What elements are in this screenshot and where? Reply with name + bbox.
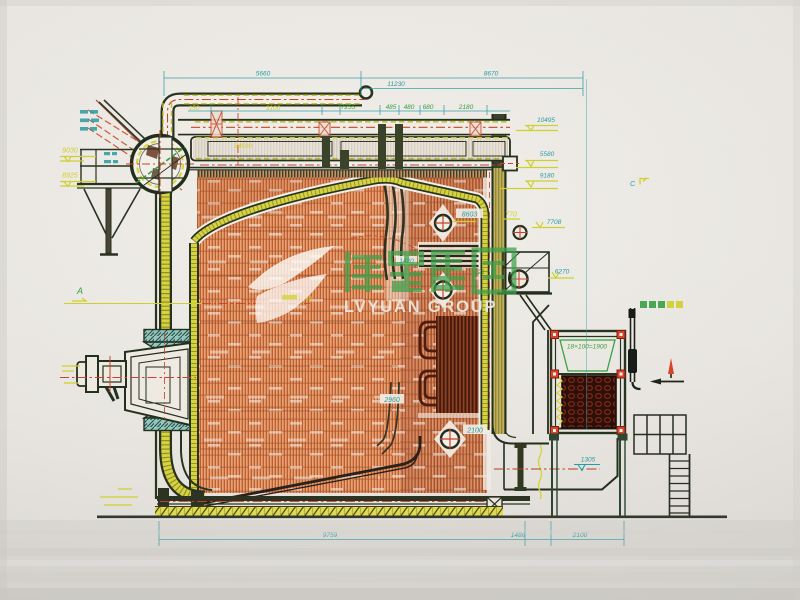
svg-text:2100: 2100 xyxy=(466,428,483,435)
svg-text:9180: 9180 xyxy=(540,173,555,180)
svg-text:150: 150 xyxy=(189,105,200,112)
svg-text:3100: 3100 xyxy=(266,105,281,112)
svg-text:7708: 7708 xyxy=(547,219,562,226)
svg-text:1305: 1305 xyxy=(581,457,596,464)
svg-text:2180: 2180 xyxy=(458,104,474,111)
svg-text:8925: 8925 xyxy=(62,173,78,180)
svg-text:7255: 7255 xyxy=(341,104,356,111)
svg-text:A: A xyxy=(76,286,83,296)
svg-text:6270: 6270 xyxy=(555,269,570,276)
svg-text:11230: 11230 xyxy=(387,81,405,88)
svg-text:480: 480 xyxy=(404,104,415,111)
svg-text:680: 680 xyxy=(423,104,434,111)
svg-text:8603: 8603 xyxy=(462,212,478,219)
svg-text:10495: 10495 xyxy=(537,117,555,124)
svg-text:485: 485 xyxy=(386,104,397,111)
svg-text:9030: 9030 xyxy=(62,148,78,155)
svg-text:C: C xyxy=(630,181,636,188)
svg-text:2960: 2960 xyxy=(383,397,400,404)
svg-text:34500: 34500 xyxy=(234,143,252,150)
svg-text:5580: 5580 xyxy=(540,151,555,158)
svg-text:770: 770 xyxy=(505,212,517,219)
svg-text:18×100=1900: 18×100=1900 xyxy=(567,344,608,351)
svg-text:5660: 5660 xyxy=(256,71,271,78)
svg-text:8670: 8670 xyxy=(484,71,499,78)
svg-text:LVYUAN GROUP: LVYUAN GROUP xyxy=(344,298,497,316)
